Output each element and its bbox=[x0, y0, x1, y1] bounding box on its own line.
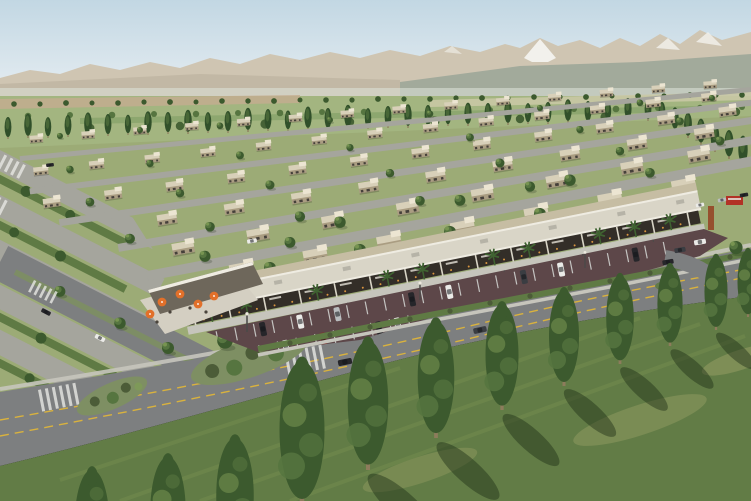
entry-monument bbox=[708, 206, 714, 230]
aerial-render-viewport bbox=[0, 0, 751, 501]
red-sign bbox=[726, 196, 743, 205]
aerial-render bbox=[0, 0, 751, 501]
